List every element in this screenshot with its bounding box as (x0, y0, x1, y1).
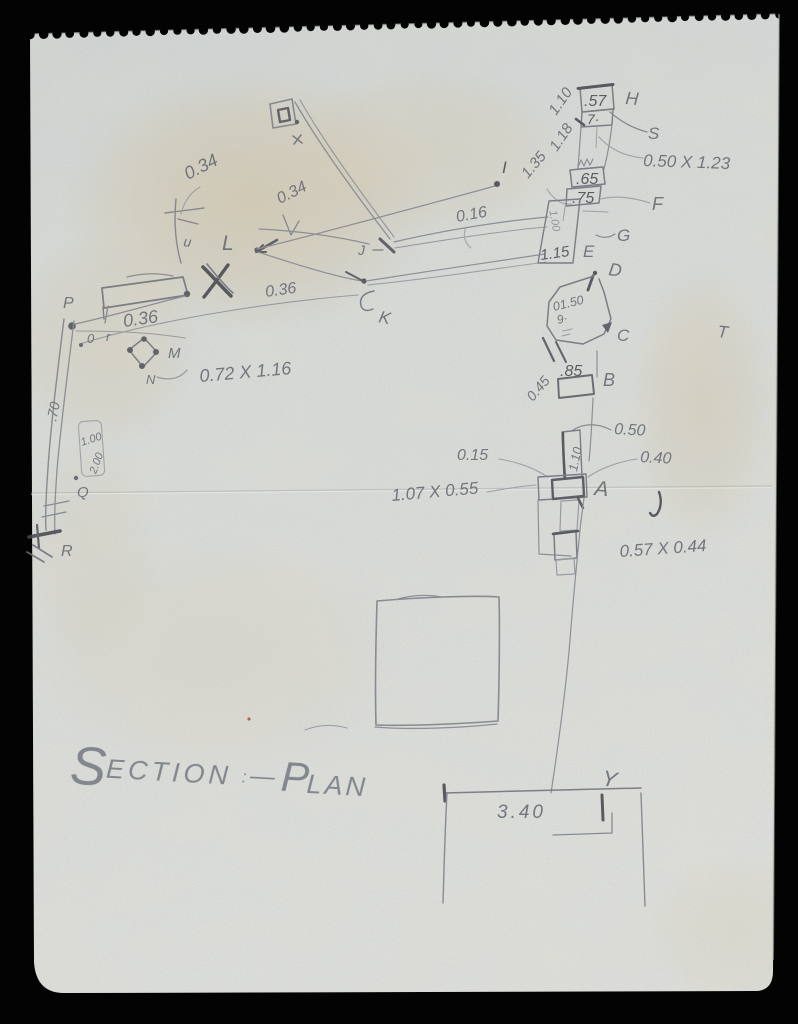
svg-text:R: R (61, 543, 73, 560)
svg-text:3.40: 3.40 (497, 802, 546, 823)
svg-text:.57: .57 (584, 93, 607, 110)
svg-text:B: B (603, 370, 615, 390)
svg-text:E: E (583, 242, 595, 261)
svg-text:.65: .65 (576, 171, 598, 188)
svg-text:0.50: 0.50 (614, 421, 646, 440)
svg-text:Q: Q (77, 484, 89, 501)
svg-text:0.50 X 1.23: 0.50 X 1.23 (643, 151, 731, 173)
svg-text:0: 0 (87, 331, 95, 346)
svg-text:—: — (248, 762, 277, 791)
svg-text:P: P (63, 295, 74, 312)
svg-text:I: I (502, 158, 507, 177)
svg-text:r: r (106, 329, 111, 344)
svg-text:7·: 7· (587, 111, 599, 127)
svg-text:LAN: LAN (306, 769, 369, 802)
svg-text:.75: .75 (572, 190, 594, 207)
svg-text:J: J (357, 242, 366, 258)
svg-text:N: N (146, 372, 156, 387)
svg-text:M: M (168, 345, 181, 362)
svg-text:S: S (648, 124, 660, 143)
svg-text:C: C (617, 326, 630, 345)
svg-text:L: L (222, 232, 234, 255)
svg-text:S: S (69, 736, 108, 798)
svg-text:G: G (617, 226, 630, 245)
svg-text:0.40: 0.40 (640, 449, 672, 468)
svg-text:D: D (607, 259, 623, 281)
svg-text:0.15: 0.15 (457, 447, 488, 464)
svg-text:F: F (652, 194, 664, 214)
